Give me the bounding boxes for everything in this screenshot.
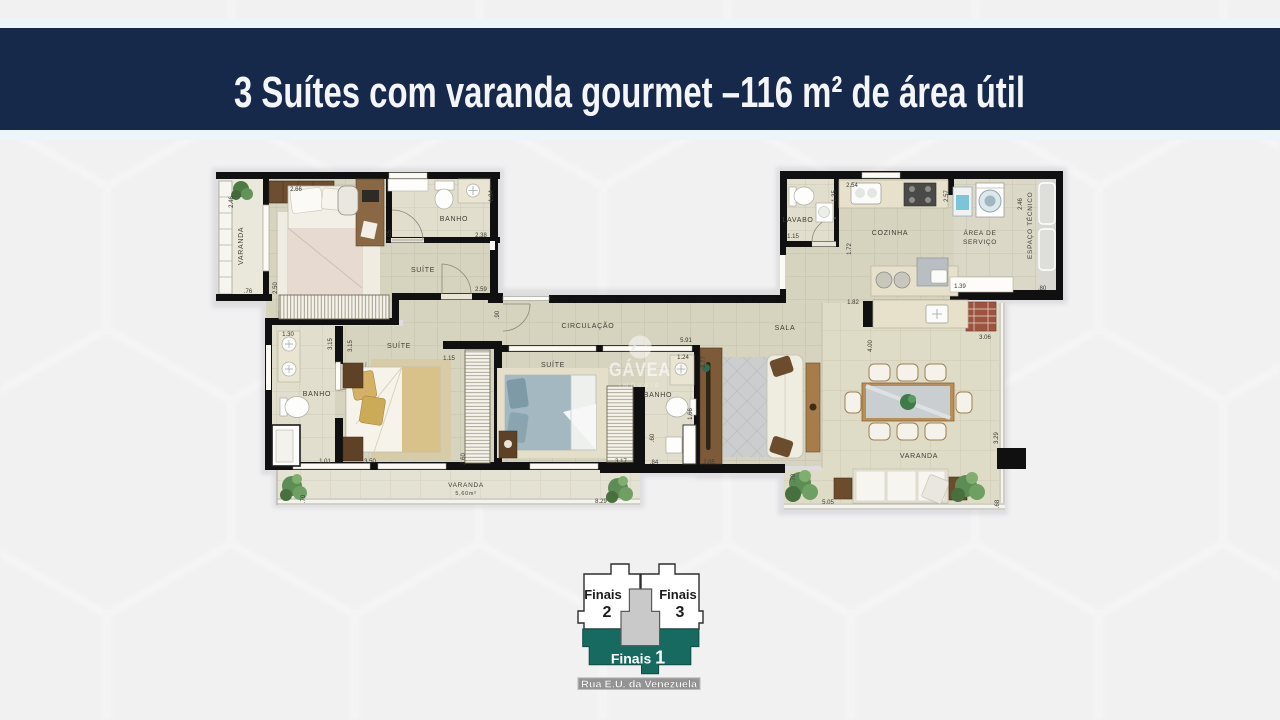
svg-text:8.29: 8.29 bbox=[595, 499, 607, 505]
svg-text:IMÓVEIS: IMÓVEIS bbox=[619, 382, 661, 389]
svg-text:1.30: 1.30 bbox=[282, 332, 294, 338]
svg-text:3.29: 3.29 bbox=[994, 432, 1000, 444]
svg-text:2.46: 2.46 bbox=[229, 196, 235, 208]
svg-text:1.66: 1.66 bbox=[688, 408, 694, 420]
svg-text:BANHO: BANHO bbox=[440, 216, 468, 223]
svg-text:1.72: 1.72 bbox=[847, 243, 853, 255]
svg-text:SERVIÇO: SERVIÇO bbox=[963, 239, 997, 246]
svg-text:2.54: 2.54 bbox=[846, 183, 858, 189]
svg-text:5.91: 5.91 bbox=[680, 338, 692, 344]
svg-text:.80: .80 bbox=[1038, 286, 1047, 292]
svg-text:3.50: 3.50 bbox=[364, 459, 376, 465]
svg-text:2.59: 2.59 bbox=[475, 287, 487, 293]
svg-text:.68: .68 bbox=[995, 499, 1001, 508]
svg-text:3: 3 bbox=[676, 604, 685, 621]
svg-text:1.15: 1.15 bbox=[443, 356, 455, 362]
svg-text:1.24: 1.24 bbox=[677, 355, 689, 361]
svg-text:COZINHA: COZINHA bbox=[872, 230, 908, 237]
svg-text:SALA: SALA bbox=[775, 325, 796, 332]
svg-text:3 Suítes com varanda gourmet –: 3 Suítes com varanda gourmet –116 m² de … bbox=[234, 68, 1025, 117]
svg-text:2.66: 2.66 bbox=[290, 187, 302, 193]
svg-text:3.17: 3.17 bbox=[615, 459, 627, 465]
svg-text:GÁVEA: GÁVEA bbox=[609, 359, 671, 381]
svg-text:CIRCULAÇÃO: CIRCULAÇÃO bbox=[562, 321, 615, 330]
svg-text:2.57: 2.57 bbox=[944, 190, 950, 202]
svg-text:1.39: 1.39 bbox=[954, 284, 966, 290]
svg-text:1.82: 1.82 bbox=[847, 300, 859, 306]
svg-text:.84: .84 bbox=[650, 460, 659, 466]
svg-text:Finais: Finais bbox=[659, 587, 697, 602]
svg-text:SUÍTE: SUÍTE bbox=[387, 341, 411, 350]
svg-text:LAVABO: LAVABO bbox=[782, 217, 813, 224]
svg-text:1.05: 1.05 bbox=[387, 230, 393, 242]
svg-text:3.06: 3.06 bbox=[979, 335, 991, 341]
svg-text:VARANDA: VARANDA bbox=[448, 482, 484, 489]
svg-text:5,60m²: 5,60m² bbox=[455, 491, 476, 497]
svg-text:VARANDA: VARANDA bbox=[900, 453, 938, 460]
svg-text:VARANDA: VARANDA bbox=[238, 227, 245, 265]
svg-text:SUÍTE: SUÍTE bbox=[411, 265, 435, 274]
svg-text:3.15: 3.15 bbox=[328, 338, 334, 350]
svg-text:2.60: 2.60 bbox=[461, 453, 467, 465]
svg-text:2.50: 2.50 bbox=[273, 282, 279, 294]
svg-text:BANHO: BANHO bbox=[303, 391, 331, 398]
svg-text:.60: .60 bbox=[650, 433, 656, 442]
svg-text:SUÍTE: SUÍTE bbox=[541, 360, 565, 369]
svg-text:.76: .76 bbox=[244, 289, 253, 295]
svg-text:2.77: 2.77 bbox=[701, 356, 707, 368]
svg-text:2.05: 2.05 bbox=[703, 460, 715, 466]
svg-text:1.35: 1.35 bbox=[832, 190, 838, 202]
svg-text:1.34: 1.34 bbox=[489, 190, 495, 202]
svg-text:ÁREA DE: ÁREA DE bbox=[963, 228, 996, 237]
svg-text:2.46: 2.46 bbox=[1018, 198, 1024, 210]
svg-text:ESPAÇO TÉCNICO: ESPAÇO TÉCNICO bbox=[1025, 192, 1034, 259]
svg-text:5.05: 5.05 bbox=[822, 500, 834, 506]
svg-text:3.15: 3.15 bbox=[348, 340, 354, 352]
svg-text:.90: .90 bbox=[495, 310, 501, 319]
svg-text:.70: .70 bbox=[301, 494, 307, 503]
svg-text:1.01: 1.01 bbox=[319, 459, 331, 465]
svg-text:2: 2 bbox=[603, 604, 612, 621]
svg-text:1.15: 1.15 bbox=[787, 234, 799, 240]
svg-text:2.38: 2.38 bbox=[475, 233, 487, 239]
svg-text:4.00: 4.00 bbox=[868, 340, 874, 352]
svg-text:BANHO: BANHO bbox=[644, 392, 672, 399]
svg-text:Rua E.U. da Venezuela: Rua E.U. da Venezuela bbox=[581, 678, 697, 690]
svg-text:Finais 1: Finais 1 bbox=[611, 648, 665, 668]
svg-text:Finais: Finais bbox=[584, 587, 622, 602]
svg-text:.70: .70 bbox=[791, 473, 797, 482]
